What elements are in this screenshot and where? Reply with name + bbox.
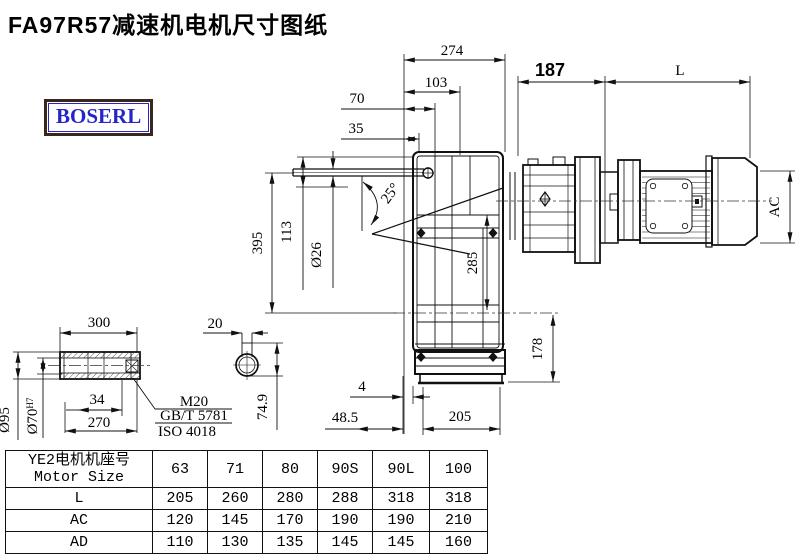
dim-205: 205	[449, 409, 472, 425]
fan-cowl	[712, 158, 757, 245]
cell-AD-100: 160	[430, 532, 488, 554]
dim-70: 70	[350, 91, 365, 107]
cell-AC-100: 210	[430, 510, 488, 532]
cell-L-71: 260	[208, 488, 263, 510]
size-col-71: 71	[208, 451, 263, 488]
cell-AD-71: 130	[208, 532, 263, 554]
table-row-AD: AD 110 130 135 145 145 160	[6, 532, 488, 554]
table-row-L: L 205 260 280 288 318 318	[6, 488, 488, 510]
dim-178: 178	[530, 338, 546, 361]
dim-dia70-tolerance: H7	[25, 397, 35, 408]
dim-113: 113	[279, 221, 295, 243]
adapter-drum	[575, 157, 600, 263]
cell-AD-90s: 145	[318, 532, 373, 554]
size-col-90s: 90S	[318, 451, 373, 488]
cell-L-63: 205	[153, 488, 208, 510]
cell-AC-63: 120	[153, 510, 208, 532]
table-header-motor-size: YE2电机机座号 Motor Size	[6, 451, 153, 488]
cell-AD-80: 135	[263, 532, 318, 554]
boserl-logo-text: BOSERL	[48, 103, 149, 132]
gearbox-housing	[413, 152, 505, 383]
size-col-63: 63	[153, 451, 208, 488]
dim-dia26: Ø26	[309, 242, 325, 268]
dim-300: 300	[88, 315, 111, 331]
table-header-en: Motor Size	[6, 469, 152, 486]
dim-34: 34	[90, 392, 106, 408]
dim-dia70h7: Ø70H7	[25, 397, 41, 434]
cell-AD-90l: 145	[373, 532, 430, 554]
dim-274: 274	[441, 43, 464, 59]
size-col-80: 80	[263, 451, 318, 488]
dim-dia70-base: Ø70	[25, 409, 41, 435]
row-label-AC: AC	[6, 510, 153, 532]
bolt-diamond-icon	[540, 192, 550, 206]
size-col-90l: 90L	[373, 451, 430, 488]
dim-395: 395	[250, 232, 266, 255]
table-row-AC: AC 120 145 170 190 190 210	[6, 510, 488, 532]
dim-L: L	[675, 63, 684, 79]
boserl-logo: BOSERL	[44, 99, 153, 136]
page-title: FA97R57减速机电机尺寸图纸	[8, 6, 328, 40]
size-col-100: 100	[430, 451, 488, 488]
dim-103: 103	[425, 75, 448, 91]
row-label-L: L	[6, 488, 153, 510]
cell-L-100: 318	[430, 488, 488, 510]
cell-AC-90s: 190	[318, 510, 373, 532]
dim-35: 35	[349, 121, 364, 137]
bolt-diamond-icon	[417, 228, 498, 362]
cell-AD-63: 110	[153, 532, 208, 554]
dim-270: 270	[88, 415, 111, 431]
page: 274 103 70 35 187 L AC 395 113 Ø26 25° 2…	[0, 0, 800, 555]
table-header-cn: YE2电机机座号	[6, 452, 152, 469]
cell-L-90s: 288	[318, 488, 373, 510]
label-gbt5781: GB/T 5781	[160, 408, 228, 424]
dim-48-5: 48.5	[332, 410, 358, 426]
cell-AC-71: 145	[208, 510, 263, 532]
cell-L-90l: 318	[373, 488, 430, 510]
cell-L-80: 280	[263, 488, 318, 510]
motor-assembly	[510, 156, 757, 263]
motor-size-table: YE2电机机座号 Motor Size 63 71 80 90S 90L 100…	[5, 450, 488, 554]
motor-flange	[618, 160, 640, 240]
dim-AC: AC	[767, 197, 783, 218]
adapter-neck	[600, 172, 618, 243]
r57-reducer	[523, 165, 575, 252]
cell-AC-90l: 190	[373, 510, 430, 532]
shaft-section-circle	[233, 333, 261, 380]
dim-dia95: Ø95	[0, 407, 13, 433]
row-label-AD: AD	[6, 532, 153, 554]
dim-20: 20	[208, 316, 223, 332]
dim-25deg: 25°	[378, 180, 403, 206]
dim-187: 187	[535, 60, 565, 80]
label-iso4018: ISO 4018	[158, 424, 216, 440]
dim-285: 285	[465, 252, 481, 275]
dim-4: 4	[358, 379, 366, 395]
motor-frame-panel	[646, 179, 692, 233]
dimension-drawing: 274 103 70 35 187 L AC 395 113 Ø26 25° 2…	[0, 0, 800, 450]
cell-AC-80: 170	[263, 510, 318, 532]
dim-74-9: 74.9	[255, 394, 271, 420]
